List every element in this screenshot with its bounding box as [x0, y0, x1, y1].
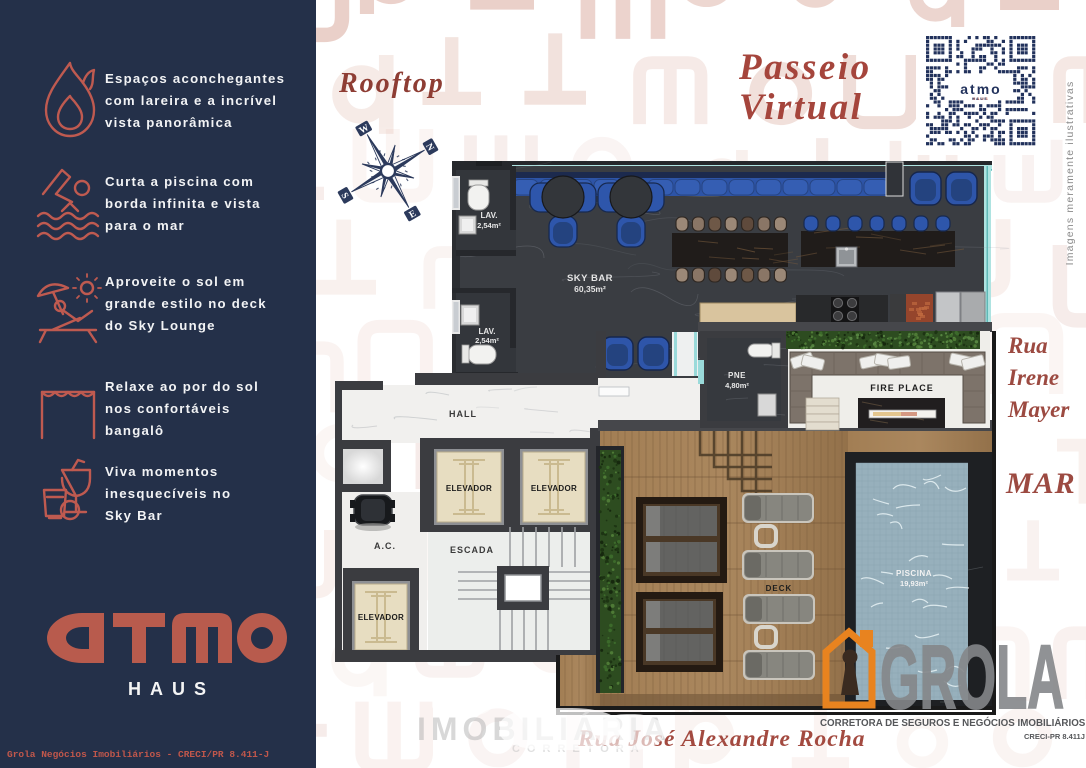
svg-text:GROLA: GROLA: [880, 628, 1064, 728]
